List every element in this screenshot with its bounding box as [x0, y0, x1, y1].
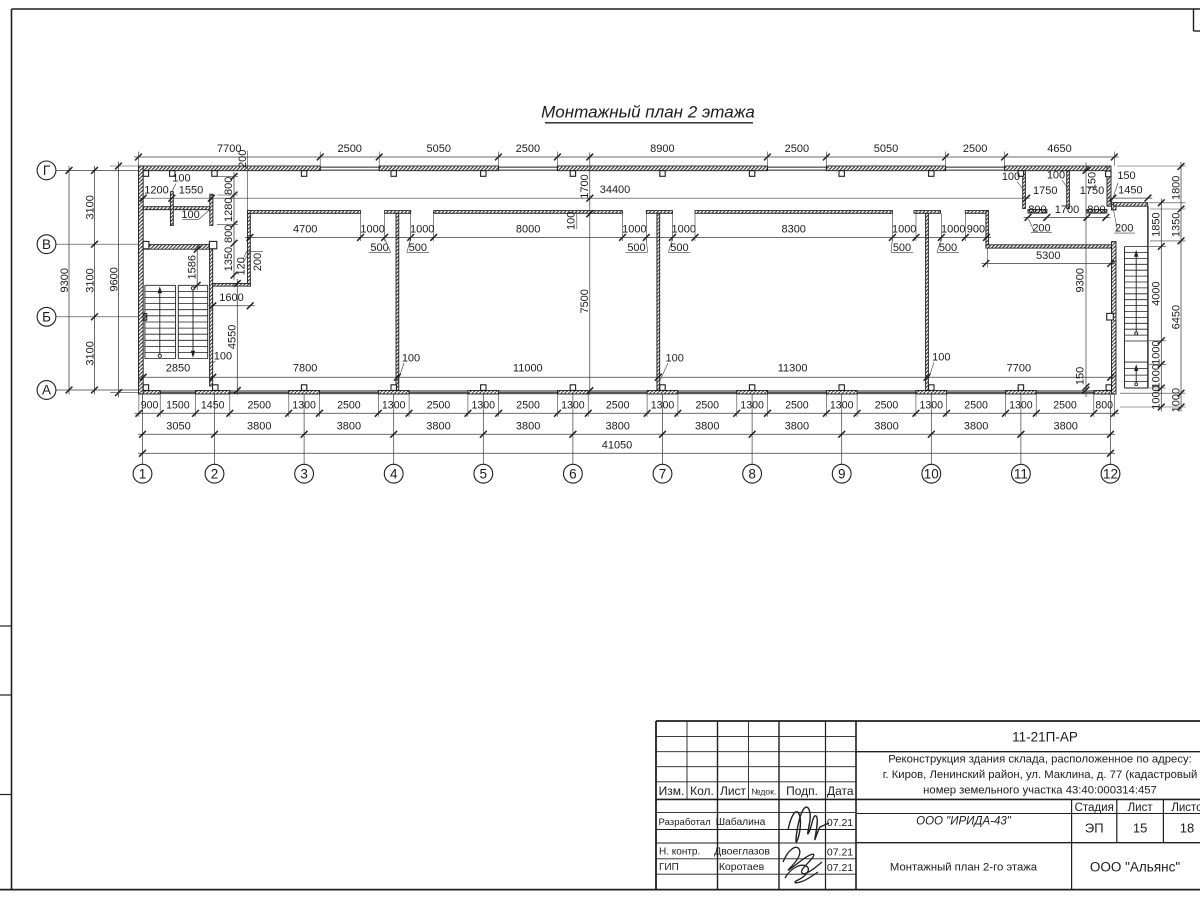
svg-text:150: 150	[1117, 170, 1135, 182]
svg-text:3100: 3100	[85, 341, 97, 365]
svg-text:1300: 1300	[1009, 400, 1033, 412]
svg-text:Стадия: Стадия	[1075, 802, 1114, 814]
svg-text:150: 150	[1074, 367, 1086, 385]
svg-text:Монтажный план 2 этажа: Монтажный план 2 этажа	[541, 103, 755, 122]
svg-text:9: 9	[838, 466, 846, 481]
svg-text:8900: 8900	[650, 143, 674, 155]
svg-text:07.21: 07.21	[827, 847, 853, 859]
svg-text:1850: 1850	[1151, 212, 1163, 236]
svg-text:1600: 1600	[219, 292, 243, 304]
svg-text:1750: 1750	[1033, 185, 1057, 197]
svg-text:8000: 8000	[516, 224, 540, 236]
svg-text:1750: 1750	[1080, 185, 1104, 197]
svg-text:3100: 3100	[85, 268, 97, 292]
svg-text:1000: 1000	[1151, 340, 1163, 364]
svg-text:г. Киров, Ленинский район, ул.: г. Киров, Ленинский район, ул. Маклина, …	[883, 769, 1198, 781]
svg-text:900: 900	[141, 400, 159, 412]
svg-text:100: 100	[1002, 171, 1020, 183]
svg-text:100: 100	[1047, 169, 1065, 181]
svg-text:41050: 41050	[602, 440, 633, 452]
svg-text:1800: 1800	[1170, 176, 1182, 200]
svg-text:1000: 1000	[1151, 385, 1163, 409]
svg-text:3050: 3050	[166, 420, 190, 432]
svg-text:07.21: 07.21	[827, 862, 853, 874]
svg-text:7800: 7800	[293, 363, 317, 375]
svg-text:1200: 1200	[144, 185, 168, 197]
svg-text:07.21: 07.21	[827, 817, 853, 829]
svg-text:8300: 8300	[781, 224, 805, 236]
svg-text:ООО "Альянс": ООО "Альянс"	[1090, 859, 1180, 874]
svg-text:3800: 3800	[785, 420, 809, 432]
svg-text:8: 8	[748, 466, 756, 481]
svg-text:1500: 1500	[166, 400, 190, 412]
svg-text:ГИП: ГИП	[659, 862, 679, 873]
svg-text:1280: 1280	[223, 197, 235, 221]
svg-text:800: 800	[1028, 204, 1046, 216]
svg-text:Шабалина: Шабалина	[716, 816, 766, 828]
svg-text:2850: 2850	[166, 363, 190, 375]
svg-text:1350: 1350	[223, 247, 235, 271]
svg-text:1300: 1300	[651, 400, 675, 412]
svg-text:2500: 2500	[963, 143, 987, 155]
svg-text:ЭП: ЭП	[1085, 821, 1104, 836]
svg-text:5: 5	[480, 466, 488, 481]
svg-text:1700: 1700	[1055, 204, 1079, 216]
svg-text:2500: 2500	[337, 400, 361, 412]
svg-text:3: 3	[300, 466, 308, 481]
svg-text:3800: 3800	[964, 420, 988, 432]
svg-text:Листов: Листов	[1171, 802, 1200, 814]
svg-text:2500: 2500	[516, 143, 540, 155]
svg-text:3800: 3800	[426, 420, 450, 432]
svg-text:11300: 11300	[778, 363, 808, 375]
svg-text:4650: 4650	[1047, 143, 1071, 155]
svg-text:2: 2	[211, 466, 219, 481]
svg-text:4: 4	[390, 466, 398, 481]
svg-text:900: 900	[967, 224, 985, 236]
svg-text:1300: 1300	[920, 400, 944, 412]
svg-text:3800: 3800	[605, 420, 629, 432]
svg-text:5050: 5050	[874, 143, 898, 155]
svg-text:4700: 4700	[293, 224, 317, 236]
svg-text:1000: 1000	[360, 224, 384, 236]
svg-text:100: 100	[402, 352, 420, 364]
svg-text:Кол.: Кол.	[690, 784, 714, 798]
svg-text:11: 11	[1014, 466, 1028, 481]
svg-text:2500: 2500	[516, 400, 540, 412]
svg-text:Монтажный план 2-го этажа: Монтажный план 2-го этажа	[890, 861, 1038, 873]
svg-text:1300: 1300	[382, 400, 406, 412]
svg-text:200: 200	[252, 253, 264, 271]
svg-text:2500: 2500	[785, 143, 809, 155]
svg-text:2500: 2500	[964, 400, 988, 412]
svg-text:3800: 3800	[516, 420, 540, 432]
svg-text:4550: 4550	[227, 325, 239, 349]
svg-text:номер земельного участка 43:40: номер земельного участка 43:40:000314:45…	[923, 784, 1157, 796]
svg-text:2500: 2500	[427, 400, 451, 412]
svg-text:100: 100	[932, 352, 950, 364]
svg-text:100: 100	[214, 351, 232, 363]
svg-text:7500: 7500	[579, 289, 591, 313]
svg-text:Изм.: Изм.	[659, 784, 685, 798]
svg-text:1300: 1300	[472, 400, 496, 412]
svg-text:11-21П-АР: 11-21П-АР	[1012, 730, 1078, 745]
svg-text:15: 15	[1133, 821, 1147, 836]
svg-text:Дата: Дата	[827, 784, 854, 798]
svg-text:1450: 1450	[201, 400, 225, 412]
svg-text:2500: 2500	[696, 400, 720, 412]
svg-text:Двоеглазов: Двоеглазов	[714, 846, 770, 858]
svg-text:9600: 9600	[109, 267, 121, 291]
svg-text:Реконструкция здания склада, р: Реконструкция здания склада, расположенн…	[888, 753, 1192, 765]
svg-text:2500: 2500	[248, 400, 272, 412]
svg-text:100: 100	[666, 352, 684, 364]
svg-text:Н. контр.: Н. контр.	[659, 847, 700, 858]
svg-text:1300: 1300	[292, 400, 316, 412]
svg-text:Коротаев: Коротаев	[719, 861, 765, 873]
svg-text:3800: 3800	[247, 420, 271, 432]
svg-text:800: 800	[1095, 400, 1113, 412]
svg-text:2500: 2500	[785, 400, 809, 412]
svg-text:1700: 1700	[579, 174, 591, 198]
svg-text:Б: Б	[42, 310, 51, 325]
svg-text:1000: 1000	[1151, 364, 1163, 388]
svg-text:Лист: Лист	[1128, 802, 1154, 814]
svg-text:1: 1	[139, 466, 147, 481]
svg-text:10: 10	[924, 466, 939, 481]
svg-text:1300: 1300	[740, 400, 764, 412]
svg-text:1300: 1300	[561, 400, 585, 412]
svg-text:3100: 3100	[85, 195, 97, 219]
svg-text:Г: Г	[43, 163, 51, 178]
svg-text:5300: 5300	[1036, 250, 1060, 262]
svg-text:1586: 1586	[186, 255, 198, 279]
svg-text:1000: 1000	[672, 224, 696, 236]
svg-text:4000: 4000	[1151, 281, 1163, 305]
svg-text:1000: 1000	[892, 224, 916, 236]
svg-text:1450: 1450	[1118, 184, 1142, 196]
svg-text:1350: 1350	[1170, 213, 1182, 237]
svg-text:1300: 1300	[830, 400, 854, 412]
svg-text:11000: 11000	[513, 363, 543, 375]
svg-text:34400: 34400	[600, 184, 631, 196]
svg-text:Разработал: Разработал	[659, 817, 711, 828]
svg-text:1550: 1550	[179, 185, 203, 197]
svg-text:9300: 9300	[59, 268, 71, 292]
svg-text:5050: 5050	[427, 143, 451, 155]
svg-text:800: 800	[223, 225, 235, 243]
svg-text:100: 100	[172, 173, 190, 185]
svg-text:100: 100	[566, 212, 578, 230]
svg-text:6450: 6450	[1170, 305, 1182, 329]
svg-text:12: 12	[1103, 466, 1118, 481]
svg-text:3800: 3800	[874, 420, 898, 432]
svg-text:2500: 2500	[337, 143, 361, 155]
svg-text:9300: 9300	[1075, 268, 1087, 292]
svg-text:7700: 7700	[1007, 363, 1031, 375]
svg-text:800: 800	[223, 177, 235, 195]
svg-text:18: 18	[1180, 821, 1194, 836]
svg-text:Лист: Лист	[720, 784, 747, 798]
svg-text:2500: 2500	[875, 400, 899, 412]
svg-text:7: 7	[659, 466, 667, 481]
svg-text:Подп.: Подп.	[786, 784, 818, 798]
svg-text:1000: 1000	[1170, 388, 1182, 412]
svg-text:А: А	[42, 383, 51, 398]
svg-text:1000: 1000	[941, 224, 965, 236]
svg-text:3800: 3800	[695, 420, 719, 432]
svg-text:ООО "ИРИДА-43": ООО "ИРИДА-43"	[916, 816, 1012, 828]
svg-text:6: 6	[569, 466, 577, 481]
svg-text:1000: 1000	[410, 224, 434, 236]
svg-text:120: 120	[236, 257, 248, 275]
svg-text:1000: 1000	[622, 224, 646, 236]
svg-text:2500: 2500	[1053, 400, 1077, 412]
svg-text:№док.: №док.	[751, 787, 776, 797]
svg-text:В: В	[42, 237, 51, 252]
svg-text:800: 800	[1087, 204, 1105, 216]
svg-text:3800: 3800	[337, 420, 361, 432]
svg-text:3800: 3800	[1053, 420, 1077, 432]
svg-text:2500: 2500	[606, 400, 630, 412]
